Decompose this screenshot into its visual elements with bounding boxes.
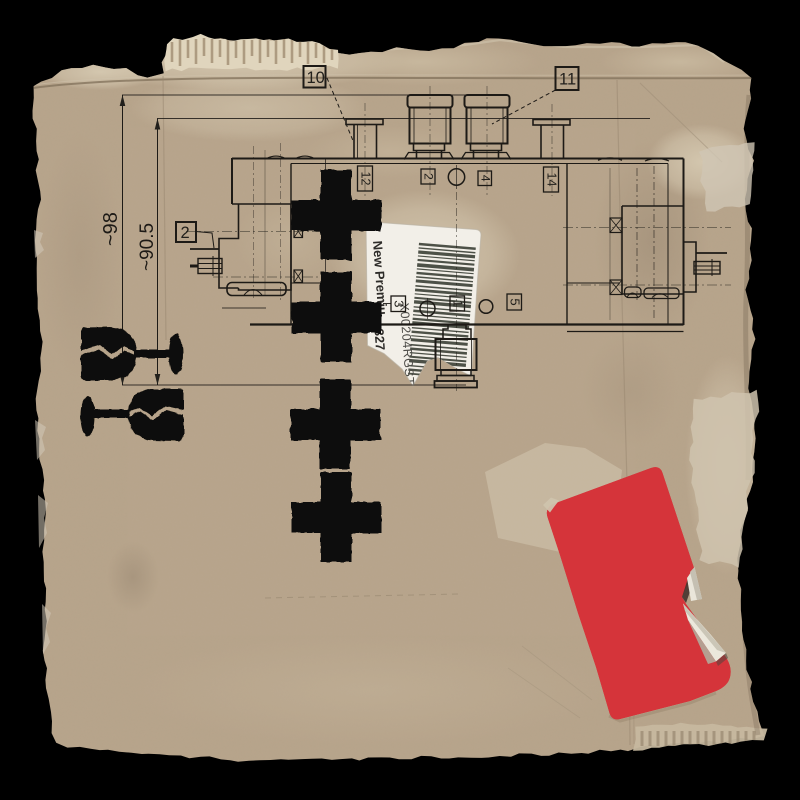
- svg-text:12: 12: [359, 172, 373, 186]
- svg-text:4: 4: [479, 175, 493, 182]
- svg-text:14: 14: [545, 173, 559, 187]
- svg-text:5: 5: [507, 298, 522, 305]
- svg-text:10: 10: [307, 69, 325, 87]
- svg-text:1: 1: [450, 300, 465, 307]
- svg-text:2: 2: [422, 173, 436, 180]
- svg-text:2: 2: [181, 224, 190, 242]
- svg-text:~90.5: ~90.5: [137, 223, 158, 271]
- svg-text:3: 3: [391, 300, 406, 307]
- svg-text:~98: ~98: [100, 212, 122, 246]
- svg-text:11: 11: [559, 71, 576, 89]
